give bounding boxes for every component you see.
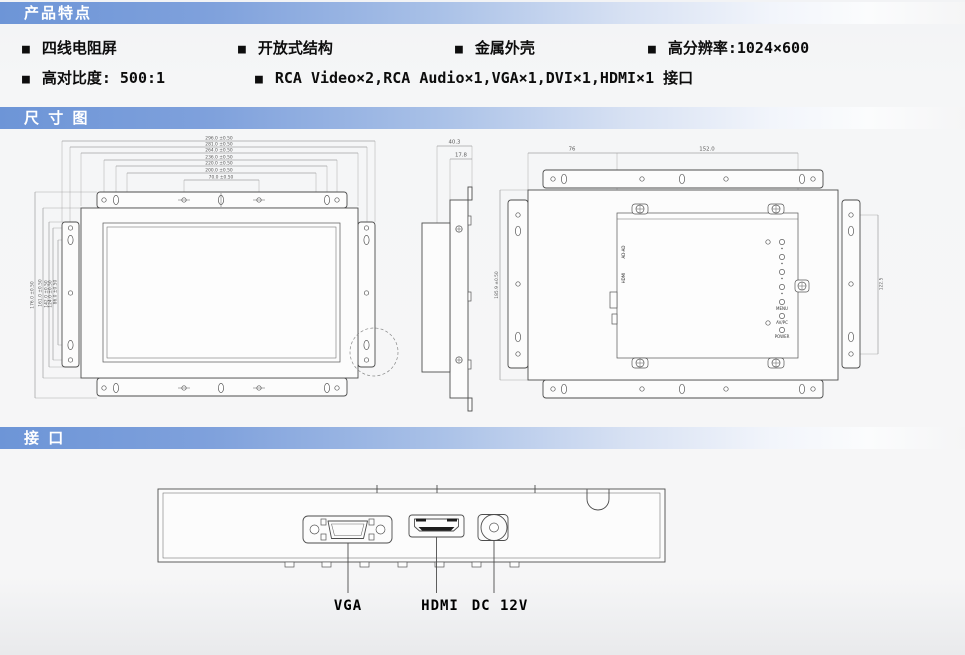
dimension-label: 122.5 [879,278,885,291]
page-background: 产品特点 ■四线电阻屏 ■开放式结构 ■金属外壳 ■高分辨率:1024×600 … [0,0,965,655]
dimension-label: 236.0 ±0.50 [205,155,233,161]
dimension-label: 176.0 ±0.50 [29,281,35,309]
feature-text: 四线电阻屏 [42,39,117,57]
feature-item: ■高对比度: 500:1 [22,67,165,88]
feature-item: ■开放式结构 [238,37,333,58]
feature-item: ■金属外壳 [455,37,535,58]
front-view-drawing: 296.0 ±0.50 281.0 ±0.50 264.0 ±0.50 236.… [18,130,410,422]
board-label: AD-AD [621,246,626,259]
dimension-label: 17.8 [455,153,468,159]
hdmi-port-icon [409,515,464,537]
board-label: HDMI [621,273,626,284]
square-bullet-icon: ■ [455,42,463,57]
port-label-vga: VGA [334,598,362,614]
feature-text: 高对比度: 500:1 [42,69,165,87]
section-title-features: 产品特点 [24,4,92,22]
dimension-label: 86.0 ±0.50 [52,279,58,304]
port-label-hdmi: HDMI [421,598,459,614]
vga-port-icon [303,516,392,543]
section-banner-features: 产品特点 [0,2,965,24]
section-banner-interfaces: 接 口 [0,427,965,449]
dimension-label: 161.0 ±0.50 [37,279,43,307]
dimension-label: 296.0 ±0.50 [205,136,233,142]
button-label: POWER [775,334,790,339]
feature-item: ■高分辨率:1024×600 [648,37,809,58]
section-title-interfaces: 接 口 [24,429,65,447]
button-label: AV/PC [776,320,788,325]
side-view-drawing: 40.3 17.8 [418,130,482,420]
button-label: MENU [776,306,788,311]
dimension-label: 185.9 ±0.50 [494,271,500,299]
port-label-dc: DC 12V [472,598,529,614]
dimension-label: 70.0 ±0.50 [209,175,234,181]
dc-jack-icon [478,515,508,541]
feature-item: ■四线电阻屏 [22,37,117,58]
feature-item: ■RCA Video×2,RCA Audio×1,VGA×1,DVI×1,HDM… [255,67,693,88]
feature-text: 开放式结构 [258,39,333,57]
feature-text: 高分辨率:1024×600 [668,39,809,57]
square-bullet-icon: ■ [22,42,30,57]
side-chassis-outline [422,187,472,411]
section-title-dimensions: 尺 寸 图 [24,109,89,127]
square-bullet-icon: ■ [238,42,246,57]
interface-view-drawing: VGA HDMI DC 12V [150,480,710,625]
rear-driver-board: AD-AD HDMI MENU AV/PC POWER [610,204,809,368]
square-bullet-icon: ■ [22,72,30,87]
feature-text: RCA Video×2,RCA Audio×1,VGA×1,DVI×1,HDMI… [275,69,693,87]
dimension-label: 281.0 ±0.50 [205,142,233,148]
dimension-label: 40.3 [448,140,460,146]
square-bullet-icon: ■ [255,72,263,87]
front-chassis-outline [62,192,375,396]
square-bullet-icon: ■ [648,42,656,57]
dimension-label: 264.0 ±0.50 [205,148,233,154]
dimension-label: 200.0 ±0.50 [205,168,233,174]
dimension-label: 76 [569,147,576,153]
dimension-label: 152.0 [699,147,715,153]
section-banner-dimensions: 尺 寸 图 [0,107,965,129]
feature-text: 金属外壳 [475,39,535,57]
rear-view-drawing: 76 152.0 185.9 ±0.50 122.5 [492,130,912,422]
dimension-label: 220.0 ±0.50 [205,161,233,167]
